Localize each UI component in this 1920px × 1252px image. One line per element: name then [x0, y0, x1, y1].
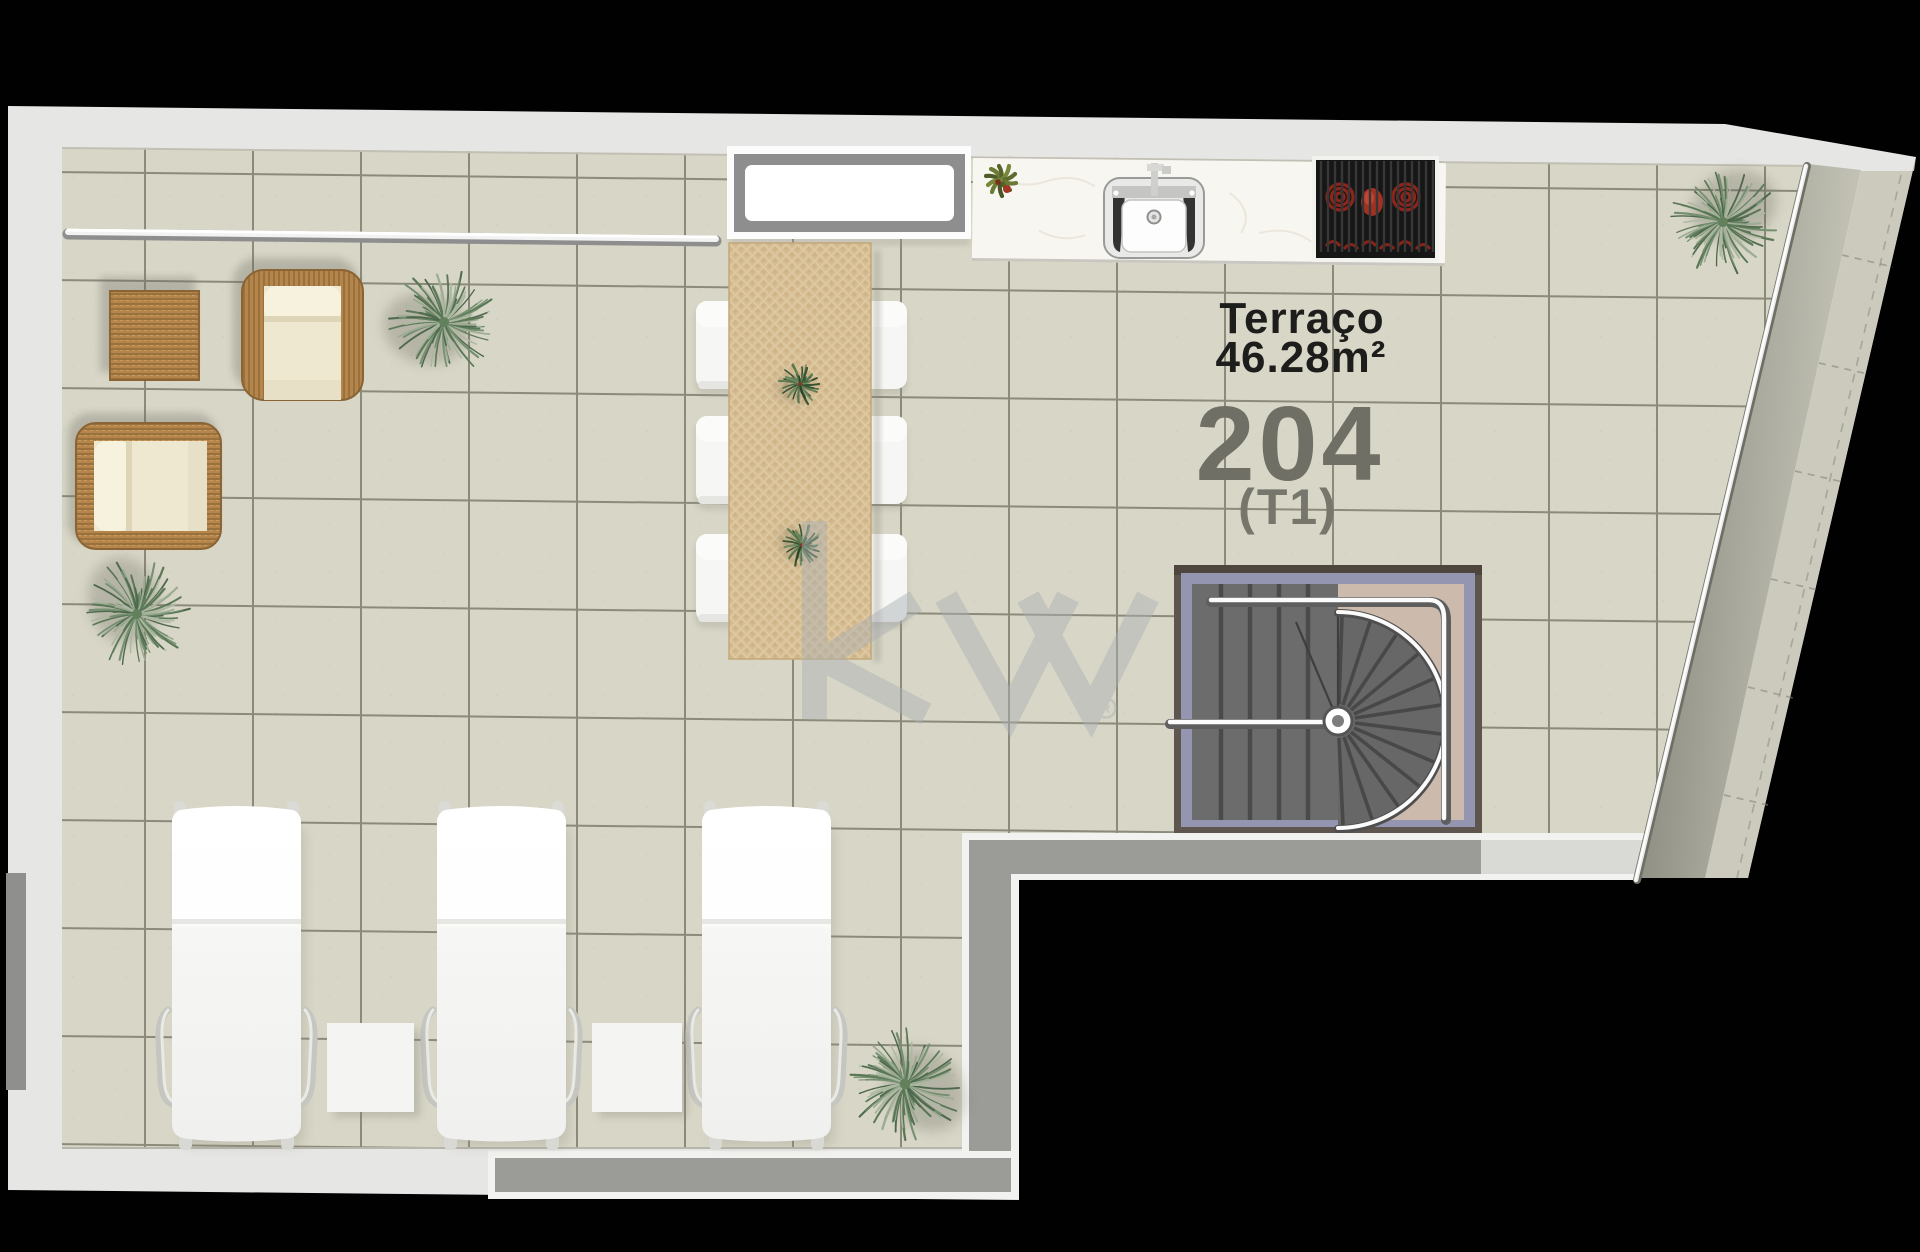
svg-text:(T1): (T1): [1238, 479, 1338, 535]
svg-text:R: R: [1102, 702, 1111, 716]
svg-text:46.28m²: 46.28m²: [1216, 333, 1387, 382]
